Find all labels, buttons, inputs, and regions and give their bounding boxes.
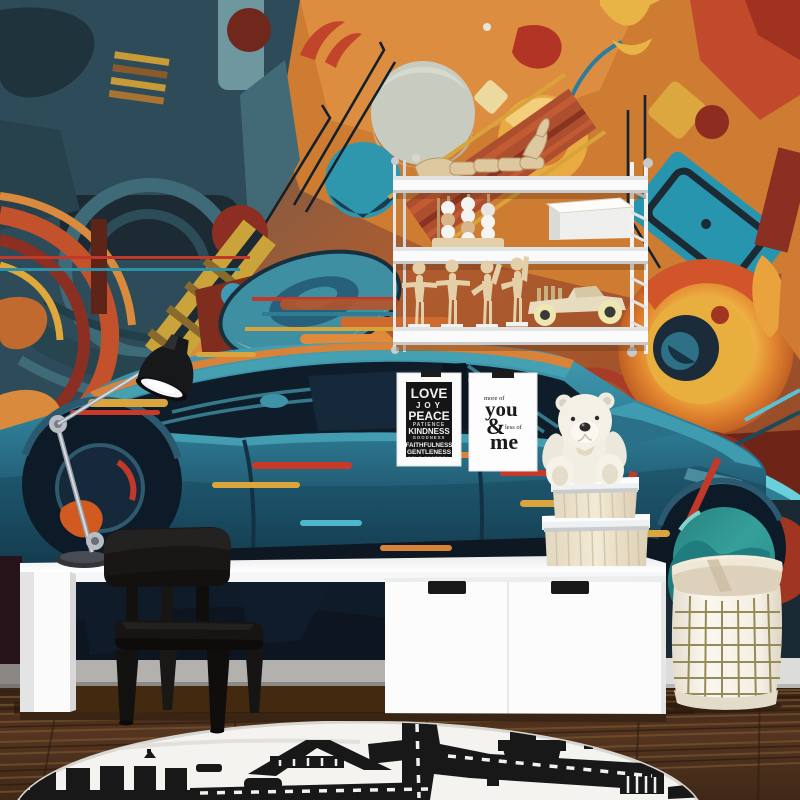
svg-text:SELF CONTROL: SELF CONTROL	[408, 456, 450, 460]
svg-text:GOODNESS: GOODNESS	[413, 435, 446, 440]
svg-text:GENTLENESS: GENTLENESS	[407, 449, 452, 456]
svg-text:me: me	[490, 429, 518, 454]
svg-text:PEACE: PEACE	[408, 409, 449, 423]
svg-text:FAITHFULNESS: FAITHFULNESS	[406, 442, 453, 449]
svg-text:LOVE: LOVE	[411, 386, 448, 401]
